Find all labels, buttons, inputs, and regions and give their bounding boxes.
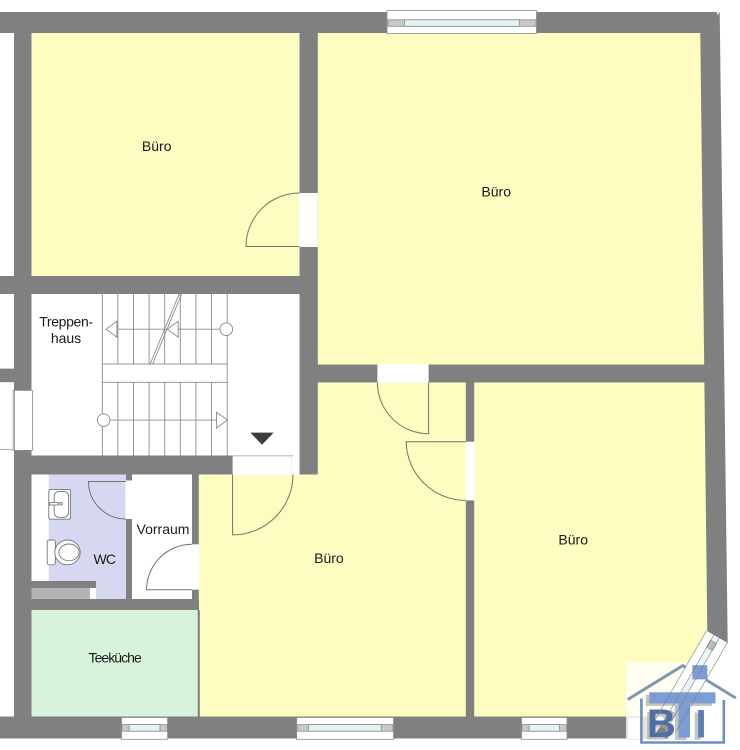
svg-text:Büro: Büro — [558, 531, 588, 547]
svg-text:Büro: Büro — [142, 138, 172, 154]
svg-text:Vorraum: Vorraum — [137, 521, 190, 537]
svg-text:Teeküche: Teeküche — [89, 650, 142, 666]
svg-text:haus: haus — [51, 330, 81, 346]
svg-text:I: I — [696, 703, 707, 747]
svg-text:Treppen-: Treppen- — [39, 314, 93, 330]
svg-text:Büro: Büro — [314, 550, 344, 566]
svg-text:Büro: Büro — [481, 184, 511, 200]
svg-text:WC: WC — [94, 551, 116, 567]
